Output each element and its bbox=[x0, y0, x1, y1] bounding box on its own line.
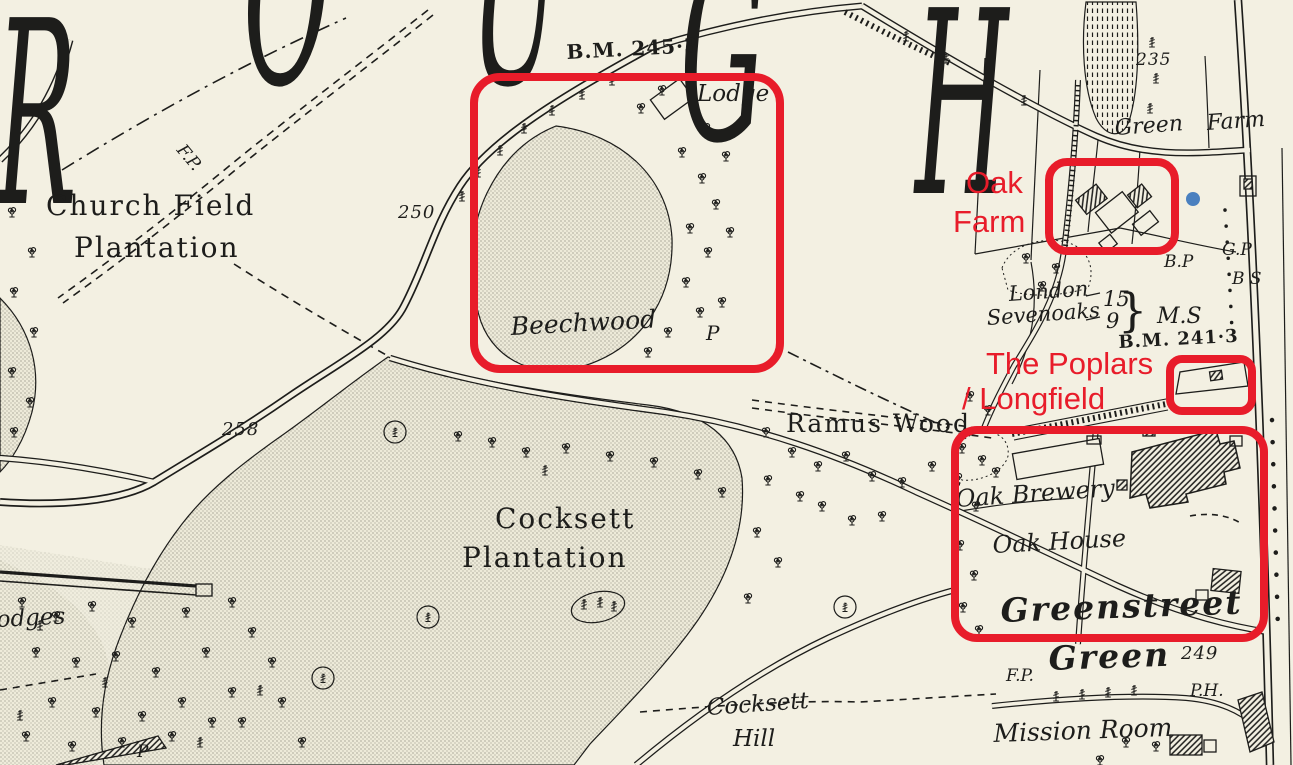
map-artwork bbox=[0, 0, 1293, 765]
map-canvas: ROUGH B.M. 245·3LodgeF.P.Church FieldPla… bbox=[0, 0, 1293, 765]
